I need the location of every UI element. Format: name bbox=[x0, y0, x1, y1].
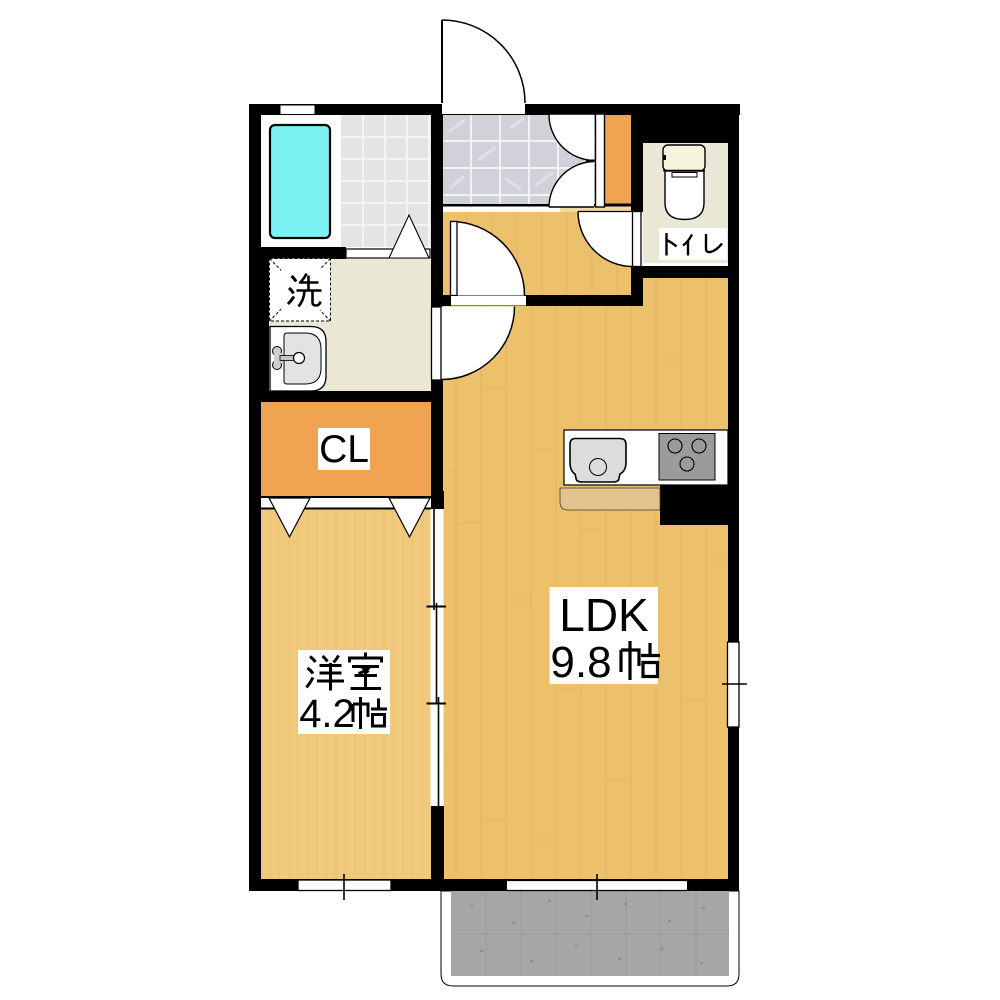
svg-text:LDK: LDK bbox=[559, 589, 649, 641]
svg-text:9.8: 9.8 bbox=[550, 638, 611, 687]
svg-text:4.2: 4.2 bbox=[299, 692, 355, 736]
svg-text:CL: CL bbox=[319, 428, 369, 471]
